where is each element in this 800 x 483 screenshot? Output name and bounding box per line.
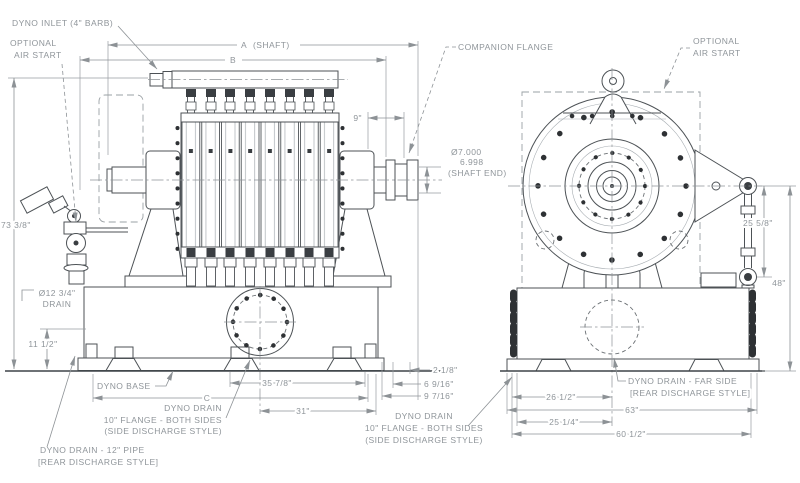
inlet-hoses bbox=[186, 89, 334, 113]
leader-drain-rear bbox=[47, 356, 75, 447]
label-dim-a-note: (SHAFT) bbox=[253, 40, 290, 50]
label-shaft-dia-lower: 6.998 bbox=[460, 157, 484, 167]
label-shaft-dia-upper: Ø7.000 bbox=[451, 147, 482, 157]
label-dim-a: A bbox=[241, 40, 247, 50]
label-drain-side-left-block: DYNO DRAIN 10" FLANGE - BOTH SIDES (SIDE… bbox=[104, 403, 222, 436]
label-air-start-left-2: AIR START bbox=[14, 50, 62, 60]
label-drain-rear-2: [REAR DISCHARGE STYLE] bbox=[38, 457, 158, 467]
label-air-start-left-1: OPTIONAL bbox=[10, 38, 57, 48]
label-drain-side-left-1: DYNO DRAIN bbox=[164, 403, 222, 413]
label-drain-dia-note: DRAIN bbox=[43, 299, 72, 309]
drawing-canvas: DYNO INLET (4" BARB) OPTIONAL AIR START … bbox=[0, 0, 800, 483]
leader-drain-dia bbox=[22, 290, 34, 301]
base-junction-box bbox=[701, 273, 736, 287]
lifting-eye bbox=[602, 70, 624, 92]
label-dim-31: 31" bbox=[296, 406, 310, 416]
dyno-base-side bbox=[78, 287, 384, 371]
label-dim-9in: 9" bbox=[353, 113, 362, 123]
label-drain-side-left-3: (SIDE DISCHARGE STYLE) bbox=[104, 426, 222, 436]
label-drain-dia: Ø12 3/4" bbox=[39, 288, 76, 298]
label-dim-2-1-8: 2 1/8" bbox=[433, 365, 458, 375]
air-start-assembly bbox=[20, 187, 128, 284]
label-air-start-right-1: OPTIONAL bbox=[693, 36, 740, 46]
label-drain-far-block: DYNO DRAIN - FAR SIDE [REAR DISCHARGE ST… bbox=[628, 376, 750, 398]
end-view bbox=[500, 68, 765, 426]
label-drain-far-2: [REAR DISCHARGE STYLE] bbox=[630, 388, 750, 398]
label-air-start-right-2: AIR START bbox=[693, 48, 741, 58]
label-dim-11-1-2: 11 1/2" bbox=[28, 339, 57, 349]
dyno-base-end bbox=[507, 288, 759, 371]
label-dim-73-3-8: 73 3/8" bbox=[1, 220, 31, 230]
label-shaft-end-note: (SHAFT END) bbox=[448, 168, 507, 178]
label-drain-rear-block: DYNO DRAIN - 12" PIPE [REAR DISCHARGE ST… bbox=[38, 445, 158, 467]
label-drain-far-1: DYNO DRAIN - FAR SIDE bbox=[628, 376, 737, 386]
leader-drain-side-right bbox=[468, 377, 512, 426]
label-drain-rear-1: DYNO DRAIN - 12" PIPE bbox=[40, 445, 145, 455]
label-dim-9-7-16: 9 7/16" bbox=[424, 391, 454, 401]
label-dim-6-9-16: 6 9/16" bbox=[424, 379, 454, 389]
label-dim-48: 48" bbox=[772, 278, 786, 288]
leader-companion-flange bbox=[409, 47, 456, 153]
label-dim-35-7-8: 35 7/8" bbox=[262, 378, 292, 388]
air-start-envelope-side bbox=[99, 95, 143, 222]
leader-dyno-base bbox=[155, 371, 173, 386]
label-dim-63: 63" bbox=[625, 405, 639, 415]
label-drain-side-right-2: 10" FLANGE - BOTH SIDES bbox=[365, 423, 483, 433]
discharge-fittings bbox=[185, 258, 335, 286]
leader-dyno-inlet bbox=[118, 26, 157, 69]
label-companion-flange: COMPANION FLANGE bbox=[458, 42, 553, 52]
label-dyno-inlet: DYNO INLET (4" BARB) bbox=[12, 18, 113, 28]
leader-air-start-right bbox=[664, 48, 690, 89]
inlet-manifold bbox=[148, 71, 348, 88]
dyno-dimensional-drawing: DYNO INLET (4" BARB) OPTIONAL AIR START … bbox=[0, 0, 800, 483]
label-dim-26-1-2: 26 1/2" bbox=[546, 392, 576, 402]
label-drain-side-right-block: DYNO DRAIN 10" FLANGE - BOTH SIDES (SIDE… bbox=[365, 411, 483, 445]
side-view bbox=[5, 71, 445, 414]
label-dim-25-1-4: 25 1/4" bbox=[549, 417, 579, 427]
label-dyno-base: DYNO BASE bbox=[97, 381, 151, 391]
label-drain-side-left-2: 10" FLANGE - BOTH SIDES bbox=[104, 415, 222, 425]
label-dim-b: B bbox=[230, 55, 236, 65]
label-drain-side-right-3: (SIDE DISCHARGE STYLE) bbox=[365, 435, 483, 445]
label-dim-25-5-8: 25 5/8" bbox=[743, 218, 773, 228]
label-dim-c: C bbox=[204, 393, 211, 403]
label-dim-60-1-2: 60 1/2" bbox=[616, 429, 646, 439]
absorber-body bbox=[178, 113, 343, 258]
label-drain-side-right-1: DYNO DRAIN bbox=[395, 411, 453, 421]
